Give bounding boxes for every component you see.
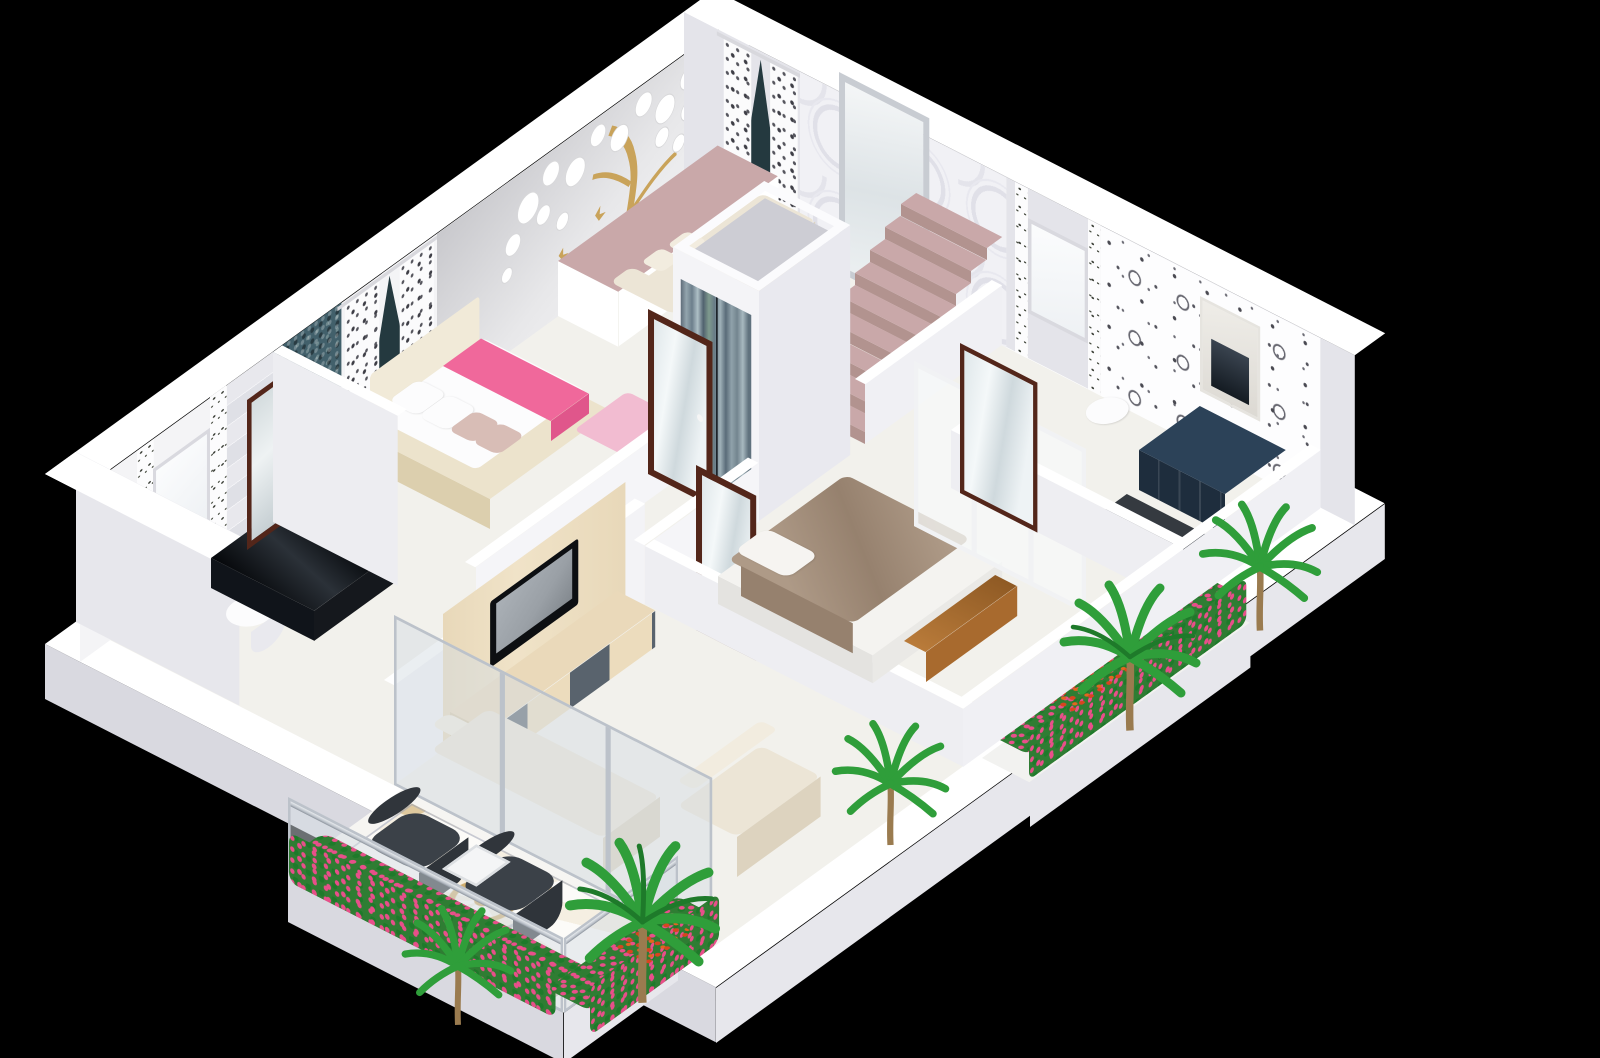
door-handle-1 bbox=[697, 414, 703, 424]
glass-door-mullion-1 bbox=[500, 672, 505, 839]
niche-opening bbox=[1211, 339, 1249, 405]
palm-plant-4 bbox=[1195, 478, 1325, 648]
palm-plant-5 bbox=[398, 885, 518, 1040]
palm-plant-1 bbox=[560, 812, 725, 1022]
vine-wallpaper-strip-3 bbox=[1015, 182, 1028, 359]
palm-plant-2 bbox=[828, 700, 953, 860]
elevator-door-seam bbox=[716, 297, 718, 496]
floorplan-scene bbox=[0, 0, 1600, 1058]
vine-wallpaper-strip-4 bbox=[1088, 219, 1101, 396]
palm-plant-3 bbox=[1055, 555, 1205, 750]
